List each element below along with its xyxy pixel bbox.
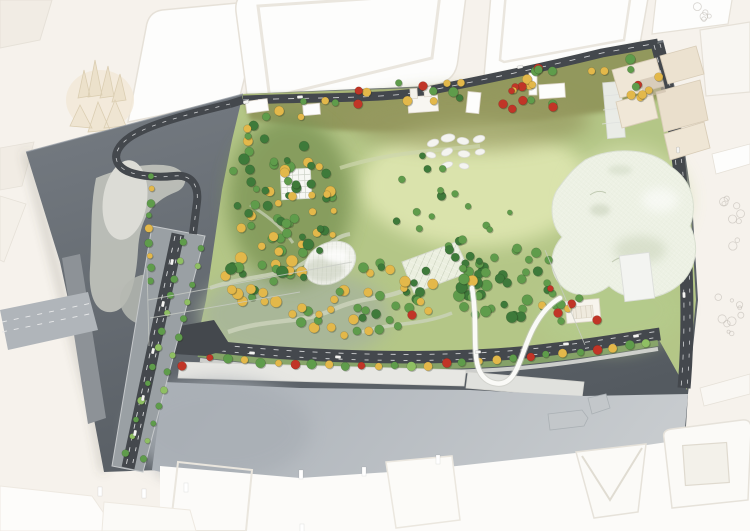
tree xyxy=(151,421,157,427)
tree xyxy=(158,328,165,335)
tree xyxy=(625,340,634,349)
tree xyxy=(476,258,482,264)
tree xyxy=(375,325,384,334)
tree xyxy=(147,264,155,272)
tree xyxy=(385,265,394,274)
tree xyxy=(316,247,323,254)
tree xyxy=(260,134,269,143)
tree xyxy=(416,225,423,232)
tree xyxy=(452,190,459,197)
tree xyxy=(251,200,260,209)
tree xyxy=(458,236,466,244)
tree xyxy=(317,225,324,232)
tree xyxy=(394,322,402,330)
tree xyxy=(437,187,443,193)
tree xyxy=(527,97,534,104)
tree xyxy=(234,202,241,209)
tree xyxy=(400,276,411,287)
tree xyxy=(391,362,398,369)
tree xyxy=(429,213,435,219)
tree xyxy=(229,167,237,175)
tree xyxy=(244,125,252,133)
tree xyxy=(149,186,155,192)
tree xyxy=(300,274,307,281)
tree xyxy=(554,309,563,318)
tree xyxy=(499,100,508,109)
tree xyxy=(547,285,553,291)
tree xyxy=(480,306,491,317)
tree xyxy=(413,208,421,216)
tree xyxy=(270,277,278,285)
tree xyxy=(627,91,636,100)
tree xyxy=(245,165,254,174)
tree xyxy=(549,103,558,112)
tree xyxy=(481,268,490,277)
tree xyxy=(327,323,336,332)
tree xyxy=(525,256,532,263)
tree xyxy=(299,141,309,151)
tree xyxy=(577,349,584,356)
massing-block xyxy=(700,22,750,96)
tree xyxy=(430,97,438,105)
tree xyxy=(274,247,283,256)
tree xyxy=(225,263,236,274)
tree xyxy=(625,54,635,64)
tree xyxy=(508,88,514,94)
tree xyxy=(507,210,512,215)
tree xyxy=(424,307,432,315)
tree xyxy=(164,368,171,375)
tree xyxy=(459,274,470,285)
tree xyxy=(309,208,316,215)
tree xyxy=(307,162,315,170)
tree xyxy=(286,255,298,267)
photo-of-architectural-model xyxy=(0,0,750,531)
tree xyxy=(256,358,266,368)
tree xyxy=(364,327,373,336)
tree xyxy=(358,362,365,369)
tree xyxy=(247,177,256,186)
tree xyxy=(386,316,394,324)
white-post xyxy=(299,470,303,479)
tree xyxy=(145,438,150,443)
tree xyxy=(145,239,153,247)
tree xyxy=(424,165,431,172)
tree xyxy=(133,417,139,423)
tree xyxy=(393,218,400,225)
pavilion-slab xyxy=(466,91,481,113)
tree xyxy=(298,114,305,121)
tree xyxy=(290,214,299,223)
tree xyxy=(391,302,399,310)
model-scene xyxy=(0,0,750,531)
tree xyxy=(358,263,368,273)
tree xyxy=(429,87,437,95)
tree xyxy=(424,362,433,371)
tree xyxy=(223,354,232,363)
tree xyxy=(506,312,517,323)
tree xyxy=(258,242,266,250)
tree xyxy=(508,105,516,113)
tree xyxy=(403,96,413,106)
tree xyxy=(177,258,184,265)
tree xyxy=(184,299,190,305)
tree xyxy=(332,99,339,106)
tree xyxy=(300,98,306,104)
tree xyxy=(417,298,425,306)
tree xyxy=(459,265,466,272)
tree xyxy=(284,157,290,163)
tree xyxy=(527,353,535,361)
tree xyxy=(531,248,541,258)
tree xyxy=(122,450,129,457)
tree xyxy=(289,310,297,318)
tree xyxy=(189,282,195,288)
white-post xyxy=(184,483,188,492)
tree xyxy=(238,154,249,165)
tree xyxy=(492,355,501,364)
tree xyxy=(557,318,564,325)
tree xyxy=(442,358,451,367)
church-body xyxy=(539,83,566,99)
white-post xyxy=(362,467,366,476)
tree xyxy=(262,113,270,121)
tree xyxy=(490,254,498,262)
tree xyxy=(443,80,450,87)
tree xyxy=(375,363,382,370)
white-post xyxy=(142,489,146,498)
tree xyxy=(307,180,316,189)
tree xyxy=(439,165,446,172)
massing-courtyard xyxy=(683,443,730,486)
tree xyxy=(227,285,236,294)
tree xyxy=(160,386,167,393)
tree xyxy=(340,332,347,339)
tree xyxy=(198,245,204,251)
tree xyxy=(548,67,557,76)
tree xyxy=(323,191,330,198)
tree xyxy=(241,356,248,363)
tree xyxy=(307,359,317,369)
tree xyxy=(408,311,417,320)
tree xyxy=(422,267,430,275)
tree xyxy=(608,344,617,353)
tree xyxy=(178,362,187,371)
model-car xyxy=(297,95,303,98)
tree xyxy=(533,266,543,276)
tree xyxy=(529,81,536,88)
tree xyxy=(362,88,371,97)
tree xyxy=(325,360,333,368)
tree xyxy=(509,354,517,362)
tree xyxy=(245,133,252,140)
tree xyxy=(282,229,291,238)
tree xyxy=(458,358,466,366)
tree xyxy=(349,314,359,324)
tree xyxy=(419,153,425,159)
tree xyxy=(378,264,385,271)
tree xyxy=(513,244,522,253)
tree xyxy=(247,222,254,229)
tree xyxy=(534,66,542,74)
tree xyxy=(575,295,583,303)
tree xyxy=(262,187,269,194)
tree xyxy=(445,245,454,254)
tree xyxy=(258,288,267,297)
canopy-dimple xyxy=(590,204,610,216)
canopy-dimple xyxy=(608,165,632,175)
tree xyxy=(330,232,336,238)
tree xyxy=(170,275,177,282)
tree xyxy=(410,279,417,286)
massing-block xyxy=(386,456,460,528)
tree xyxy=(303,239,314,250)
tree xyxy=(147,278,154,285)
tree xyxy=(457,79,465,87)
tree xyxy=(419,82,428,91)
tree xyxy=(149,364,156,371)
tree xyxy=(253,186,259,192)
tree xyxy=(258,261,267,270)
model-car xyxy=(563,342,569,345)
tree xyxy=(270,296,281,307)
tree xyxy=(341,362,349,370)
loop-road-spur xyxy=(230,100,243,104)
canopy-highlight xyxy=(642,188,678,212)
tree xyxy=(459,302,468,311)
tree xyxy=(593,316,602,325)
tree xyxy=(237,223,246,232)
white-post xyxy=(436,455,440,464)
tree xyxy=(487,226,493,232)
tree xyxy=(375,291,384,300)
model-car xyxy=(682,292,685,298)
tree xyxy=(362,306,370,314)
white-post xyxy=(300,524,304,531)
dome-highlight xyxy=(324,249,348,263)
tree xyxy=(522,269,529,276)
tree xyxy=(195,263,201,269)
tree xyxy=(353,327,361,335)
tree xyxy=(180,315,187,322)
tree xyxy=(642,339,650,347)
tree xyxy=(558,349,567,358)
tree xyxy=(545,256,553,264)
tree xyxy=(501,301,508,308)
tree xyxy=(638,90,647,99)
tree xyxy=(244,209,252,217)
tree xyxy=(336,288,344,296)
tree xyxy=(147,253,153,259)
tree xyxy=(269,232,278,241)
tree xyxy=(355,87,363,95)
tree xyxy=(180,238,187,245)
tree xyxy=(364,288,373,297)
tree xyxy=(522,295,533,306)
tree xyxy=(280,168,289,177)
tree xyxy=(327,306,334,313)
tree xyxy=(321,97,329,105)
tree xyxy=(518,96,527,105)
tree xyxy=(297,303,306,312)
tree xyxy=(170,352,176,358)
tree xyxy=(466,252,474,260)
tree xyxy=(246,284,256,294)
tree xyxy=(600,67,608,75)
tree xyxy=(316,163,323,170)
model-car xyxy=(249,351,255,354)
model-car xyxy=(633,334,639,338)
tree xyxy=(308,192,315,199)
tree xyxy=(330,296,338,304)
tree xyxy=(156,403,163,410)
tree xyxy=(207,354,214,361)
tree xyxy=(291,360,300,369)
tree xyxy=(145,381,151,387)
tree xyxy=(235,252,247,264)
tree xyxy=(448,87,458,97)
tree xyxy=(593,345,602,354)
tree xyxy=(542,351,549,358)
tree xyxy=(321,169,330,178)
tree xyxy=(270,158,278,166)
tree xyxy=(145,224,153,232)
model-car xyxy=(676,147,679,153)
tree xyxy=(427,279,437,289)
tree xyxy=(275,360,282,367)
tree xyxy=(354,304,362,312)
tree xyxy=(331,208,337,214)
white-post xyxy=(98,487,102,496)
model-car xyxy=(475,350,481,353)
tree xyxy=(588,67,595,74)
tree xyxy=(292,181,300,189)
tree xyxy=(175,334,182,341)
tree xyxy=(146,212,152,218)
tree xyxy=(371,309,380,318)
tree xyxy=(354,100,363,109)
tree xyxy=(263,201,272,210)
tree xyxy=(155,344,162,351)
tree xyxy=(315,311,322,318)
tree xyxy=(284,177,292,185)
slab-by-canopy xyxy=(619,252,654,301)
tree xyxy=(282,219,291,228)
tree xyxy=(296,317,306,327)
tree xyxy=(288,192,297,201)
tree xyxy=(147,199,155,207)
tree xyxy=(407,362,416,371)
tree xyxy=(627,66,634,73)
model-car xyxy=(335,355,341,358)
tree xyxy=(275,200,282,207)
tree xyxy=(503,278,512,287)
tree xyxy=(148,173,154,179)
tree xyxy=(398,176,405,183)
tree xyxy=(299,234,305,240)
tree xyxy=(415,287,425,297)
tree xyxy=(451,253,459,261)
tree xyxy=(632,83,640,91)
tree xyxy=(395,79,402,86)
tree xyxy=(274,106,284,116)
tree xyxy=(654,73,663,82)
tree xyxy=(465,203,471,209)
tree xyxy=(140,455,147,462)
